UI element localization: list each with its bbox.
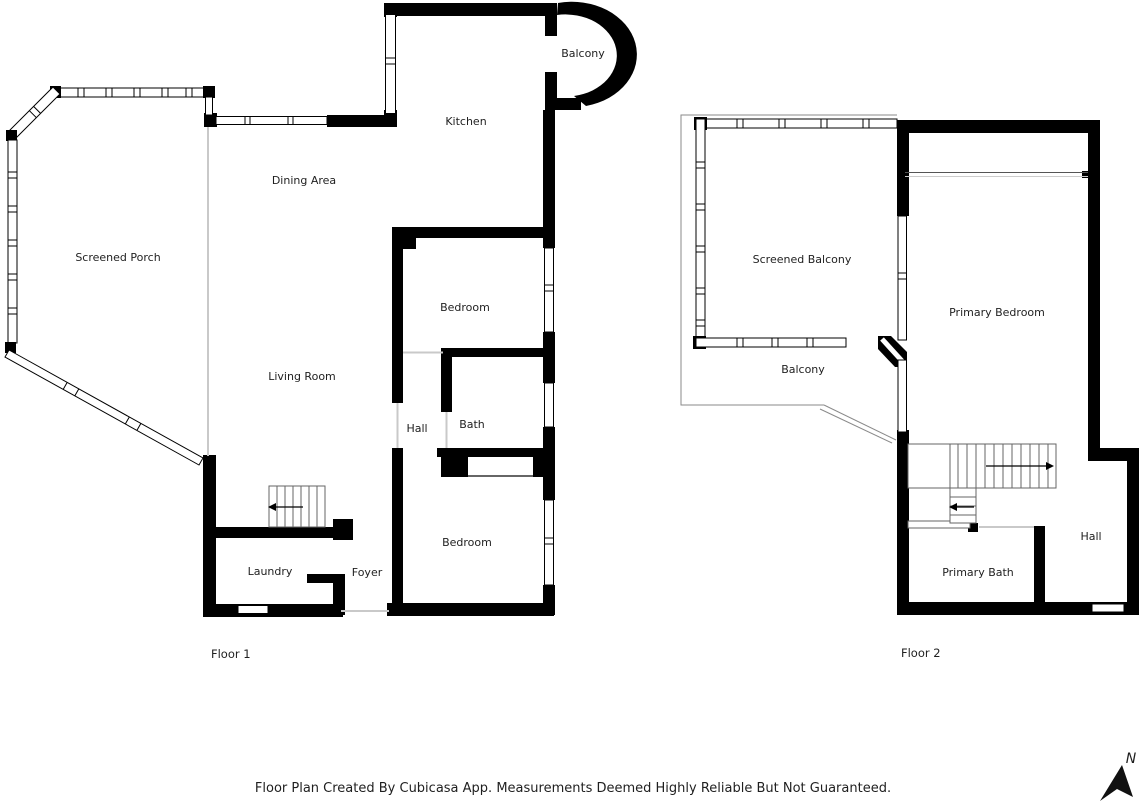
room-label-primary-bath: Primary Bath: [942, 566, 1014, 579]
room-label-bath: Bath: [459, 418, 485, 431]
room-label-laundry: Laundry: [248, 565, 293, 578]
room-label-hall-f2: Hall: [1080, 530, 1101, 543]
footer-note: Floor Plan Created By Cubicasa App. Meas…: [255, 781, 891, 796]
room-label-balcony-f2: Balcony: [781, 363, 825, 376]
stairs-floor1: [268, 486, 325, 527]
room-label-dining-area: Dining Area: [272, 174, 336, 187]
room-label-foyer: Foyer: [352, 566, 383, 579]
floor1-title: Floor 1: [211, 647, 251, 661]
compass-north-label: N: [1126, 751, 1137, 767]
floor-plan-canvas: Screened Porch Dining Area Kitchen Balco…: [0, 0, 1143, 808]
room-label-hall-f1: Hall: [406, 422, 427, 435]
room-label-kitchen: Kitchen: [445, 115, 486, 128]
room-label-primary-bedroom: Primary Bedroom: [949, 306, 1045, 319]
room-label-bedroom-2: Bedroom: [442, 536, 492, 549]
room-label-screened-porch: Screened Porch: [75, 251, 160, 264]
room-label-screened-balcony: Screened Balcony: [753, 253, 852, 266]
room-label-balcony-f1: Balcony: [561, 47, 605, 60]
floor2-title: Floor 2: [901, 646, 941, 660]
room-label-bedroom-1: Bedroom: [440, 301, 490, 314]
room-label-living-room: Living Room: [268, 370, 336, 383]
